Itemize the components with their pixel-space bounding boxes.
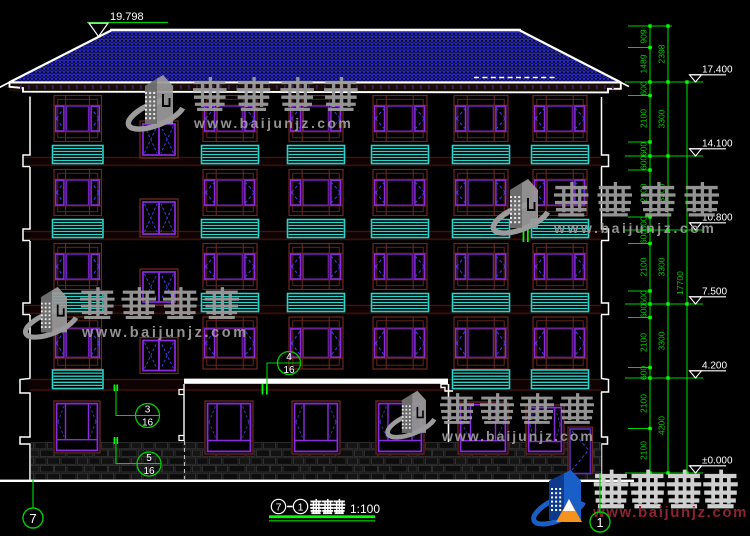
svg-text:2100: 2100 (639, 333, 649, 352)
svg-text:3: 3 (145, 405, 151, 416)
svg-text:17.400: 17.400 (702, 65, 733, 76)
svg-text:www.baijunjz.com: www.baijunjz.com (81, 325, 249, 341)
svg-text:600: 600 (639, 81, 649, 95)
svg-text:www.baijunjz.com: www.baijunjz.com (441, 428, 595, 444)
svg-text:600: 600 (639, 366, 649, 380)
svg-text:4.200: 4.200 (702, 361, 727, 372)
svg-text:www.baijunjz.com: www.baijunjz.com (553, 220, 716, 236)
svg-text:16: 16 (143, 466, 155, 477)
svg-text:4: 4 (286, 352, 292, 363)
svg-text:7: 7 (29, 511, 36, 526)
svg-text:1: 1 (298, 502, 304, 514)
svg-text:1489: 1489 (639, 54, 649, 73)
svg-text:7.500: 7.500 (702, 287, 727, 298)
svg-text:600: 600 (639, 304, 649, 318)
svg-text:14.100: 14.100 (702, 139, 733, 150)
svg-text:16: 16 (142, 418, 154, 429)
svg-text:7: 7 (276, 502, 282, 514)
svg-text:2398: 2398 (657, 44, 667, 63)
svg-text:3300: 3300 (657, 257, 667, 276)
svg-text:16: 16 (283, 365, 295, 376)
svg-text:2100: 2100 (639, 394, 649, 413)
svg-text:www.baijunjz.com: www.baijunjz.com (193, 115, 353, 131)
svg-text:5: 5 (146, 453, 152, 464)
svg-text:600: 600 (639, 156, 649, 170)
svg-text:www.baijunjz.com: www.baijunjz.com (592, 504, 748, 521)
svg-text:1: 1 (596, 515, 603, 530)
svg-text:3300: 3300 (657, 109, 667, 128)
svg-text:17700: 17700 (675, 271, 685, 295)
svg-text:3300: 3300 (657, 331, 667, 350)
svg-text:2100: 2100 (639, 109, 649, 128)
svg-text:4200: 4200 (657, 416, 667, 435)
svg-text:2100: 2100 (639, 441, 649, 460)
svg-text:1:100: 1:100 (350, 502, 380, 516)
svg-text:2100: 2100 (639, 257, 649, 276)
svg-text:±0.000: ±0.000 (702, 456, 733, 467)
svg-text:600: 600 (639, 142, 649, 156)
svg-text:19.798: 19.798 (110, 11, 144, 23)
svg-text:600: 600 (639, 290, 649, 304)
svg-text:909: 909 (639, 29, 649, 43)
